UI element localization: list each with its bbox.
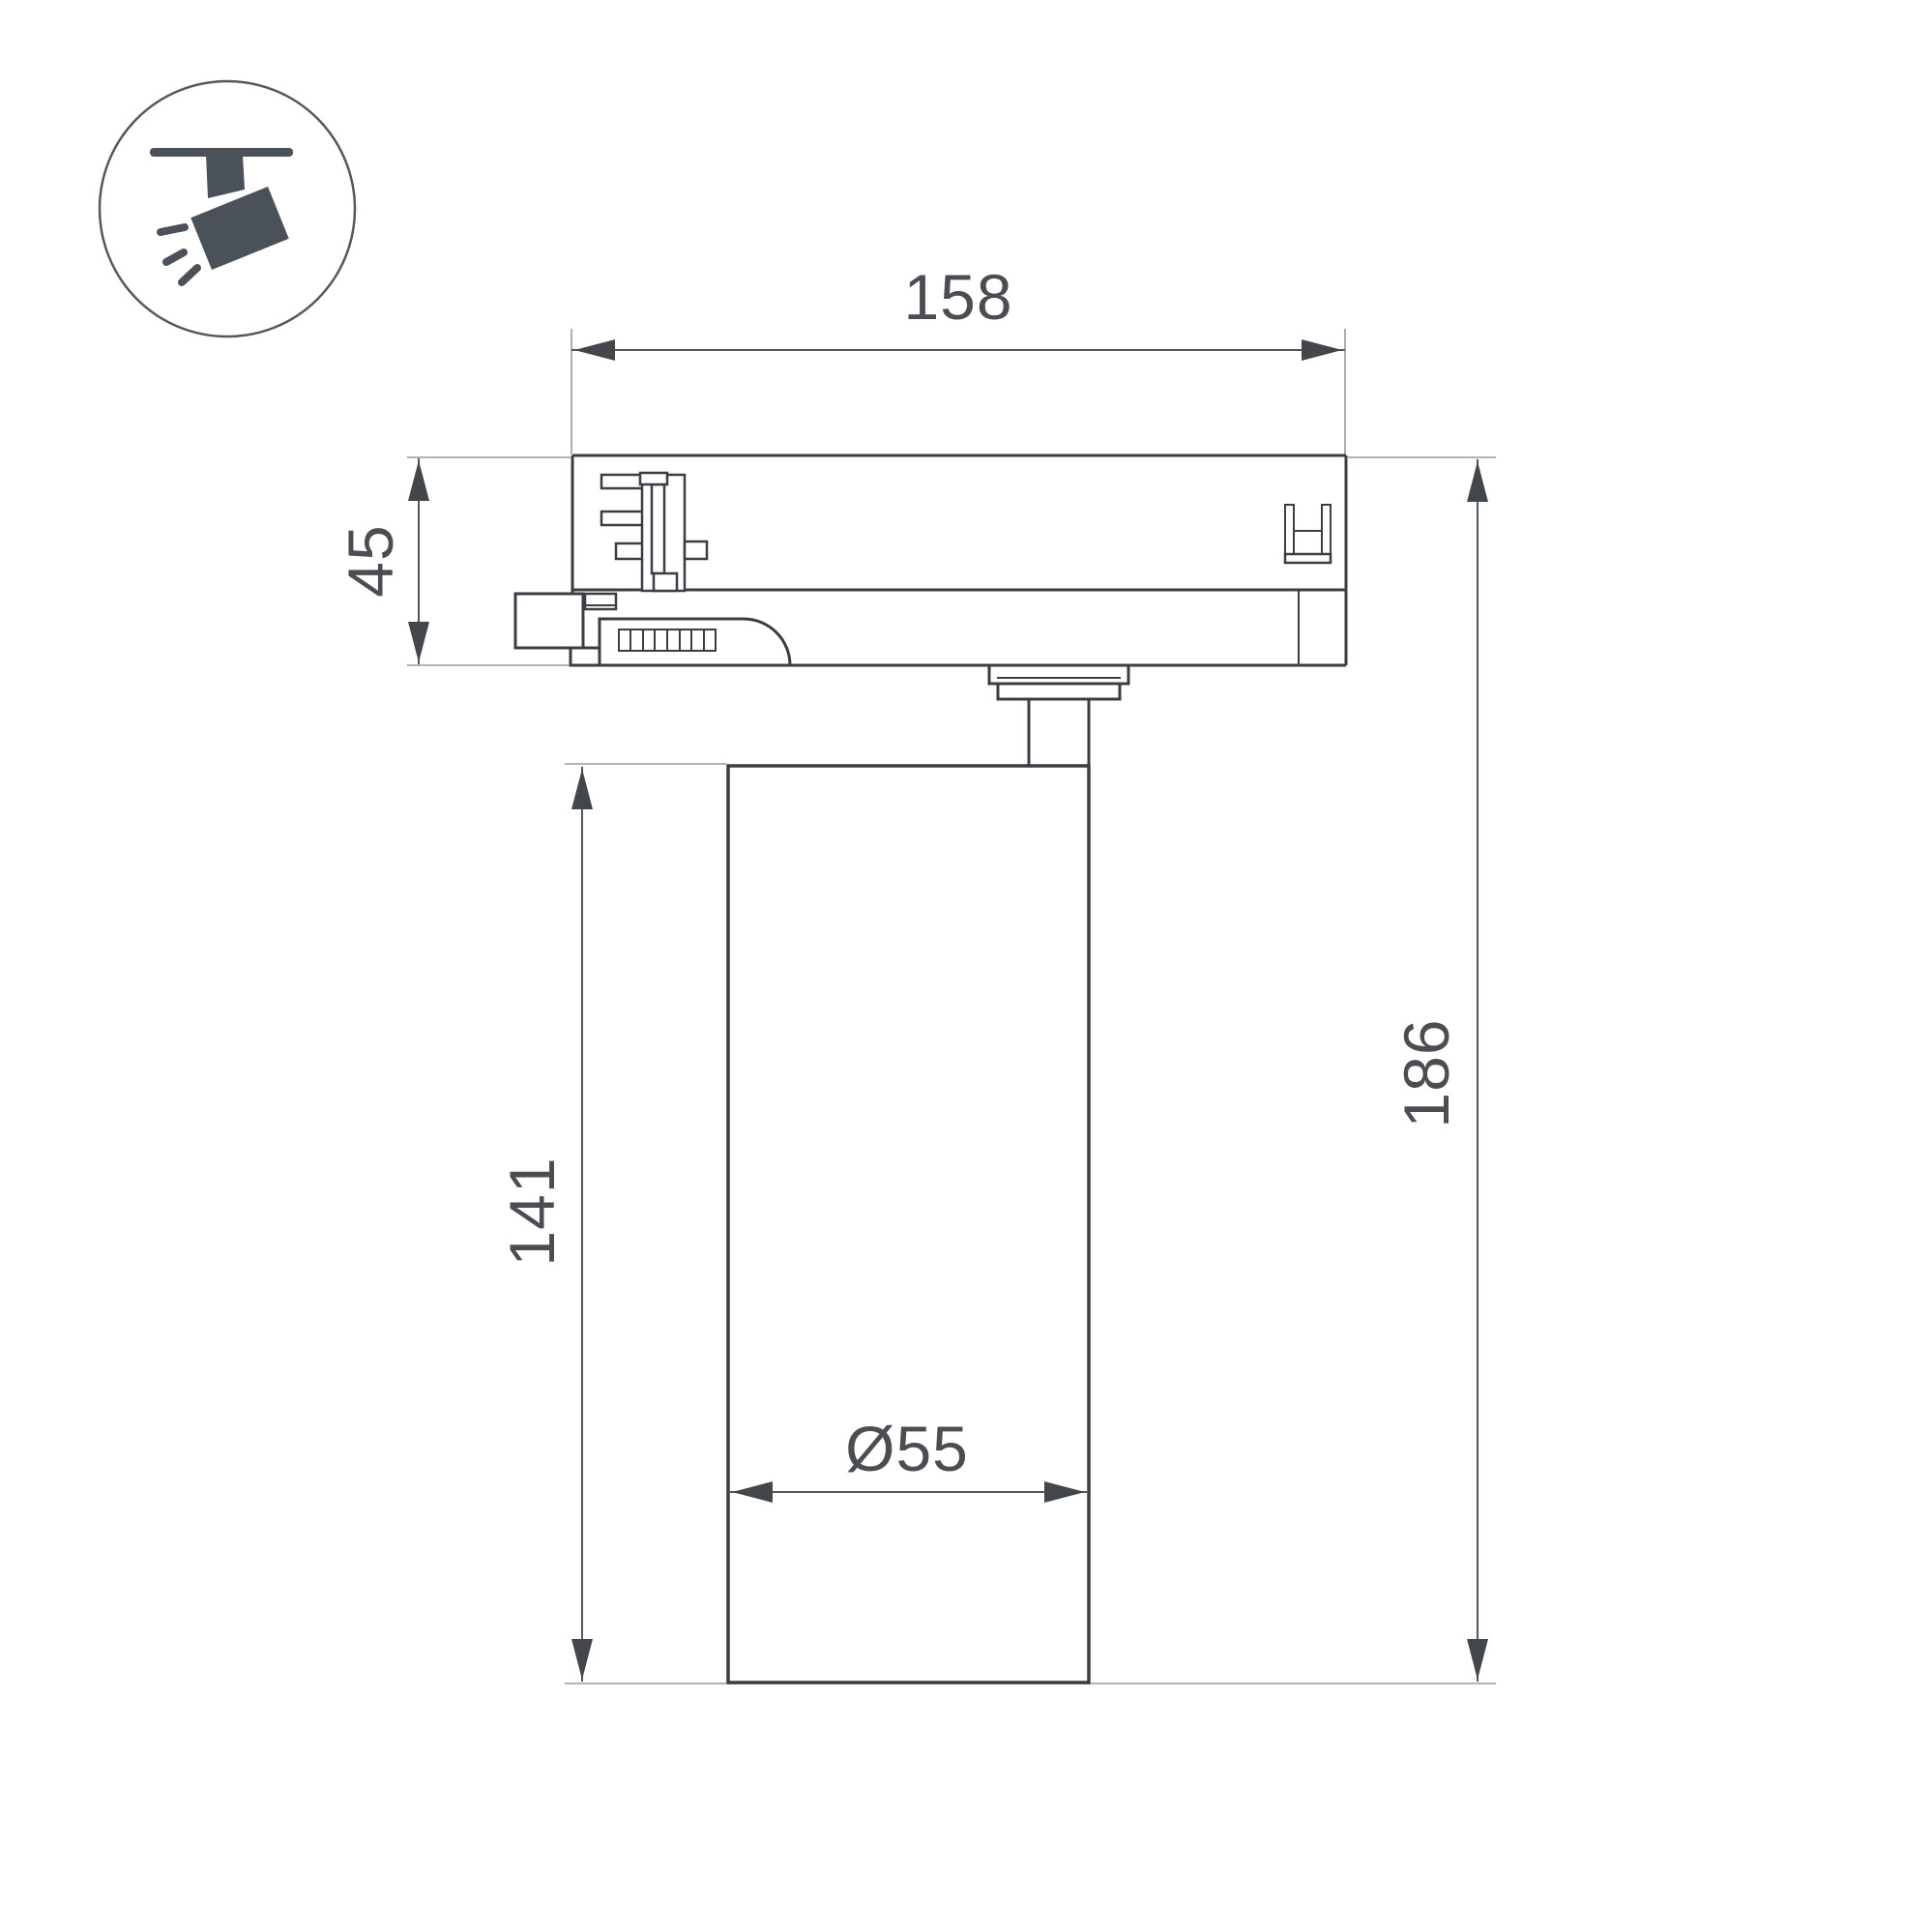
arrowhead-bottom bbox=[571, 1639, 593, 1680]
arrowhead-bottom bbox=[1467, 1639, 1488, 1680]
lamp-body-cylinder bbox=[728, 766, 1089, 1683]
contact-prong-bottom bbox=[616, 543, 644, 559]
drawing-canvas: 158 45 141 186 Ø55 bbox=[0, 0, 1932, 1932]
contact-prong-right bbox=[685, 542, 707, 559]
lever-arm bbox=[600, 619, 790, 665]
arrowhead-top bbox=[571, 769, 593, 809]
contact-prong-top bbox=[601, 475, 644, 488]
power-contact-block bbox=[601, 473, 707, 591]
contact-foot bbox=[654, 573, 677, 591]
track-light-icon bbox=[100, 81, 355, 337]
swivel-step-1 bbox=[989, 665, 1128, 684]
dimension-label-total-height: 186 bbox=[1390, 1018, 1462, 1127]
dimension-adapter-height-45: 45 bbox=[335, 458, 429, 664]
arrowhead-left bbox=[574, 339, 615, 361]
dimension-label-adapter-height: 45 bbox=[335, 524, 406, 597]
latch-box bbox=[515, 594, 583, 648]
technical-drawing: 158 45 141 186 Ø55 bbox=[0, 0, 1932, 1932]
contact-pin-cap bbox=[640, 473, 667, 484]
clamp-left-bar bbox=[1285, 505, 1294, 561]
dimension-body-height-141: 141 bbox=[496, 767, 593, 1682]
latch-notch bbox=[585, 594, 616, 609]
dimension-label-diameter: Ø55 bbox=[845, 1413, 969, 1484]
contact-pin bbox=[652, 484, 664, 573]
locking-lever-assembly bbox=[515, 594, 790, 665]
latch-step bbox=[571, 648, 600, 665]
swivel-joint bbox=[989, 665, 1128, 766]
swivel-step-2 bbox=[998, 684, 1120, 699]
dimension-label-width: 158 bbox=[903, 261, 1012, 333]
arrowhead-right bbox=[1302, 339, 1342, 361]
arrowhead-top bbox=[408, 460, 429, 501]
dimension-width-158: 158 bbox=[571, 261, 1345, 361]
arrowhead-bottom bbox=[408, 622, 429, 662]
dimension-total-height-186: 186 bbox=[1390, 459, 1488, 1682]
dimension-label-body-height: 141 bbox=[496, 1156, 568, 1266]
clamp-right-bar bbox=[1322, 505, 1331, 561]
right-clamp-bracket bbox=[1285, 505, 1331, 563]
icon-light-ray-1 bbox=[161, 227, 185, 232]
arrowhead-top bbox=[1467, 461, 1488, 502]
clamp-bottom-bar bbox=[1285, 554, 1331, 563]
stem bbox=[1029, 699, 1089, 766]
contact-prong-middle bbox=[601, 512, 644, 525]
